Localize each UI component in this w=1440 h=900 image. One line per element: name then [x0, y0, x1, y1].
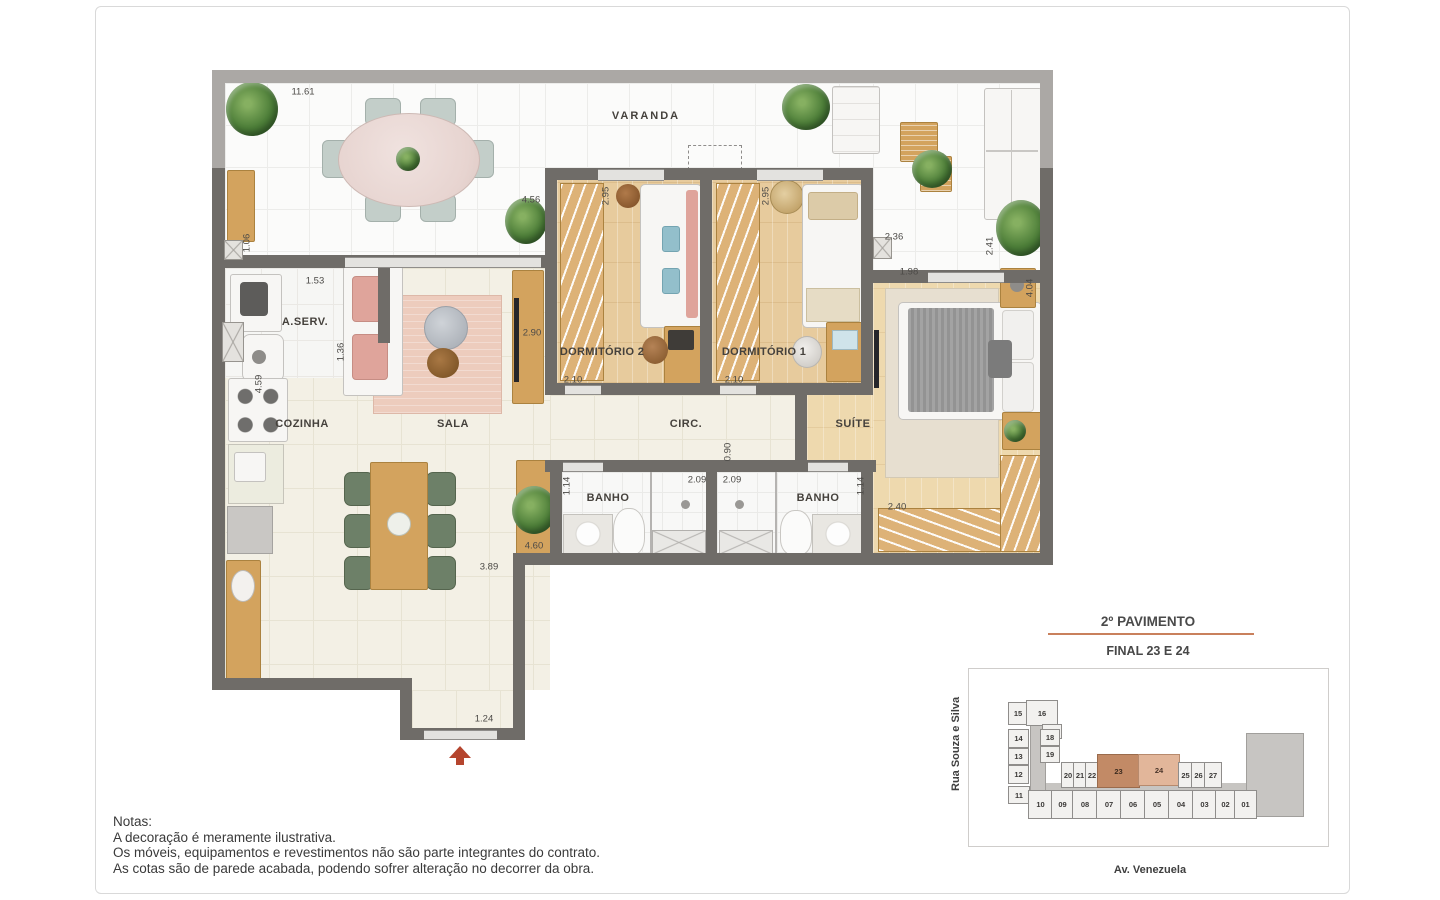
keyplan-unit-04: 04 [1168, 790, 1194, 819]
room-label-aserv: A.SERV. [282, 316, 328, 328]
note-line: As cotas são de parede acabada, podendo … [113, 861, 600, 877]
bathroom-vanity [563, 514, 613, 554]
shaft-box [222, 322, 244, 362]
dimension-label: 3.89 [480, 562, 499, 573]
fridge [227, 506, 273, 554]
dimension-label: 2.41 [985, 237, 996, 256]
room-label-cozinha: COZINHA [275, 418, 329, 430]
room-label-varanda: VARANDA [612, 110, 680, 122]
dimension-label: 1.24 [475, 714, 494, 725]
wall-aserv-right [378, 268, 390, 343]
dimension-label: 1.14 [562, 477, 573, 496]
suite-wardrobe-rack [1000, 455, 1044, 552]
shower-floor-mat [652, 530, 706, 555]
bed-blanket [806, 288, 860, 322]
dimension-label: 4.59 [254, 375, 265, 394]
note-line: Os móveis, equipamentos e revestimentos … [113, 845, 600, 861]
entry-arrow-stem [456, 757, 464, 765]
toilet [613, 508, 645, 555]
room-label-dormitorio-2: DORMITÓRIO 2 [560, 346, 644, 358]
tub-drain [252, 350, 266, 364]
keyplan-unit-15: 15 [1008, 702, 1028, 725]
keyplan-unit-19: 19 [1040, 746, 1060, 763]
door-banho2 [808, 462, 848, 472]
plant-icon [226, 82, 278, 136]
wall-entry-right [513, 565, 525, 740]
wall-bottom-left [212, 678, 412, 690]
plant-icon [782, 84, 830, 130]
bed-cushion-blue [662, 226, 680, 252]
keyplan-title: 2º PAVIMENTO [1043, 614, 1253, 629]
wall-dorm2-left [545, 168, 557, 395]
suite-bed-blanket [908, 308, 994, 412]
keyplan-unit-06: 06 [1120, 790, 1146, 819]
wall-dorm-divider [700, 180, 712, 383]
dimension-label: 2.09 [723, 475, 742, 486]
dimension-label: 4.60 [525, 541, 544, 552]
keyplan-unit-10: 10 [1028, 790, 1053, 819]
rattan-chair [770, 180, 804, 214]
kitchen-sink [234, 452, 266, 482]
shower-glass-partition [775, 472, 777, 553]
street-label-left: Rua Souza e Silva [950, 711, 962, 791]
wall-bottom [513, 553, 1053, 565]
keyplan-title-underline [1048, 633, 1254, 635]
varanda-bench [227, 170, 255, 242]
chaise-divider [1011, 90, 1012, 216]
keyplan-unit-14: 14 [1008, 729, 1029, 748]
dimension-label: 2.10 [725, 375, 744, 386]
room-label-dormitorio-1: DORMITÓRIO 1 [722, 346, 806, 358]
wall-right [1040, 168, 1053, 565]
dimension-label: 2.90 [523, 328, 542, 339]
keyplan-unit-08: 08 [1072, 790, 1098, 819]
bathroom-vanity [812, 514, 864, 554]
wall-dorm1-right [861, 180, 873, 395]
door-banho1 [563, 462, 603, 472]
keyplan-unit-11: 11 [1008, 786, 1030, 804]
bed-cushion-blue [662, 268, 680, 294]
shower-glass-partition [650, 472, 652, 553]
room-label-banho-2: BANHO [797, 492, 840, 504]
plant-icon [1004, 420, 1026, 442]
keyplan-unit-07: 07 [1096, 790, 1122, 819]
dimension-label: 1.53 [306, 276, 325, 287]
notes-block: Notas: A decoração é meramente ilustrati… [113, 814, 600, 876]
floorplan-page: VARANDAA.SERV.COZINHASALADORMITÓRIO 2DOR… [0, 0, 1440, 900]
dimension-label: 1.36 [336, 343, 347, 362]
pouf-brown [427, 348, 459, 378]
keyplan-unit-12: 12 [1008, 765, 1029, 784]
dimension-label: 2.10 [564, 375, 583, 386]
room-label-banho-1: BANHO [587, 492, 630, 504]
dining-chair-green [426, 472, 456, 506]
suite-wardrobe-rack [878, 508, 1002, 552]
dimension-label: 1.14 [856, 477, 867, 496]
table-bowl [387, 512, 411, 536]
keyplan-unit-03: 03 [1192, 790, 1217, 819]
dimension-label: 1.98 [900, 267, 919, 278]
desk-chair [642, 336, 668, 364]
door-dorm2 [565, 385, 601, 395]
chaise-divider [986, 150, 1038, 152]
door-dorm1 [720, 385, 756, 395]
door-suite-varanda [928, 272, 1004, 283]
washer-door [240, 282, 268, 316]
shower-head-icon [681, 500, 690, 509]
dimension-label: 2.36 [885, 232, 904, 243]
wall-banho-divider [706, 472, 717, 553]
note-line: A decoração é meramente ilustrativa. [113, 830, 600, 846]
toilet [780, 510, 812, 555]
room-label-circ: CIRC. [670, 418, 702, 430]
keyplan-unit-01: 01 [1234, 790, 1257, 819]
pouf-gray [424, 306, 468, 350]
room-label-sala: SALA [437, 418, 469, 430]
varanda-parapet-top [212, 70, 1053, 83]
entry-door-opening [424, 730, 497, 740]
dimension-label: 11.61 [291, 87, 314, 98]
plant-icon [996, 200, 1046, 256]
plant-icon [912, 150, 952, 188]
desk-photo-frame [668, 330, 694, 350]
ac-unit-dashed-outline [688, 145, 742, 170]
shower-head-icon [735, 500, 744, 509]
keyplan-unit-27: 27 [1204, 762, 1222, 788]
dimension-label: 0.90 [723, 443, 734, 462]
bed-pillow-beige [808, 192, 858, 220]
tv-icon [514, 298, 519, 382]
dimension-label: 2.40 [888, 502, 907, 513]
bed-pillows-pink [686, 190, 698, 318]
notes-title: Notas: [113, 814, 600, 830]
dining-chair-green [426, 514, 456, 548]
shower-floor-mat [719, 530, 773, 555]
table-centerpiece-plant-icon [396, 147, 420, 171]
wall-dorm-top [545, 168, 873, 180]
dimension-label: 4.04 [1025, 279, 1036, 298]
keyplan-unit-23: 23 [1097, 754, 1140, 788]
dimension-label: 1.06 [242, 234, 253, 253]
keyplan-unit-18: 18 [1040, 729, 1060, 746]
dimension-label: 2.09 [688, 475, 707, 486]
street-label-bottom: Av. Venezuela [1060, 864, 1240, 876]
suite-cushion-gray [988, 340, 1012, 378]
varanda-parapet-left [212, 83, 225, 168]
keyplan-unit-05: 05 [1144, 790, 1170, 819]
varanda-parapet-right [1040, 83, 1053, 168]
notes-lines: A decoração é meramente ilustrativa.Os m… [113, 830, 600, 877]
sliding-door-sala [345, 257, 541, 268]
dimension-label: 4.56 [522, 195, 541, 206]
lounge-chair [832, 86, 880, 154]
keyplan-unit-16: 16 [1026, 700, 1058, 726]
keyplan-unit-09: 09 [1051, 790, 1074, 819]
cabinet-basin [231, 570, 255, 602]
shaft-box [224, 240, 243, 260]
laptop [832, 330, 858, 350]
dimension-label: 2.95 [761, 187, 772, 206]
dimension-label: 2.95 [601, 187, 612, 206]
basket [616, 184, 640, 208]
room-label-suite: SUÍTE [836, 418, 871, 430]
wall-suite-passage [795, 395, 807, 472]
tv-icon [874, 330, 879, 388]
window-dorm2 [598, 169, 664, 181]
keyplan-subtitle: FINAL 23 E 24 [1043, 644, 1253, 658]
dining-chair-green [426, 556, 456, 590]
wall-banho1-left [550, 472, 562, 553]
keyplan-unit-02: 02 [1215, 790, 1236, 819]
keyplan-unit-13: 13 [1008, 748, 1029, 765]
entry-nook-floor [412, 690, 513, 728]
keyplan-unit-24: 24 [1138, 754, 1180, 786]
window-dorm1 [757, 169, 823, 181]
